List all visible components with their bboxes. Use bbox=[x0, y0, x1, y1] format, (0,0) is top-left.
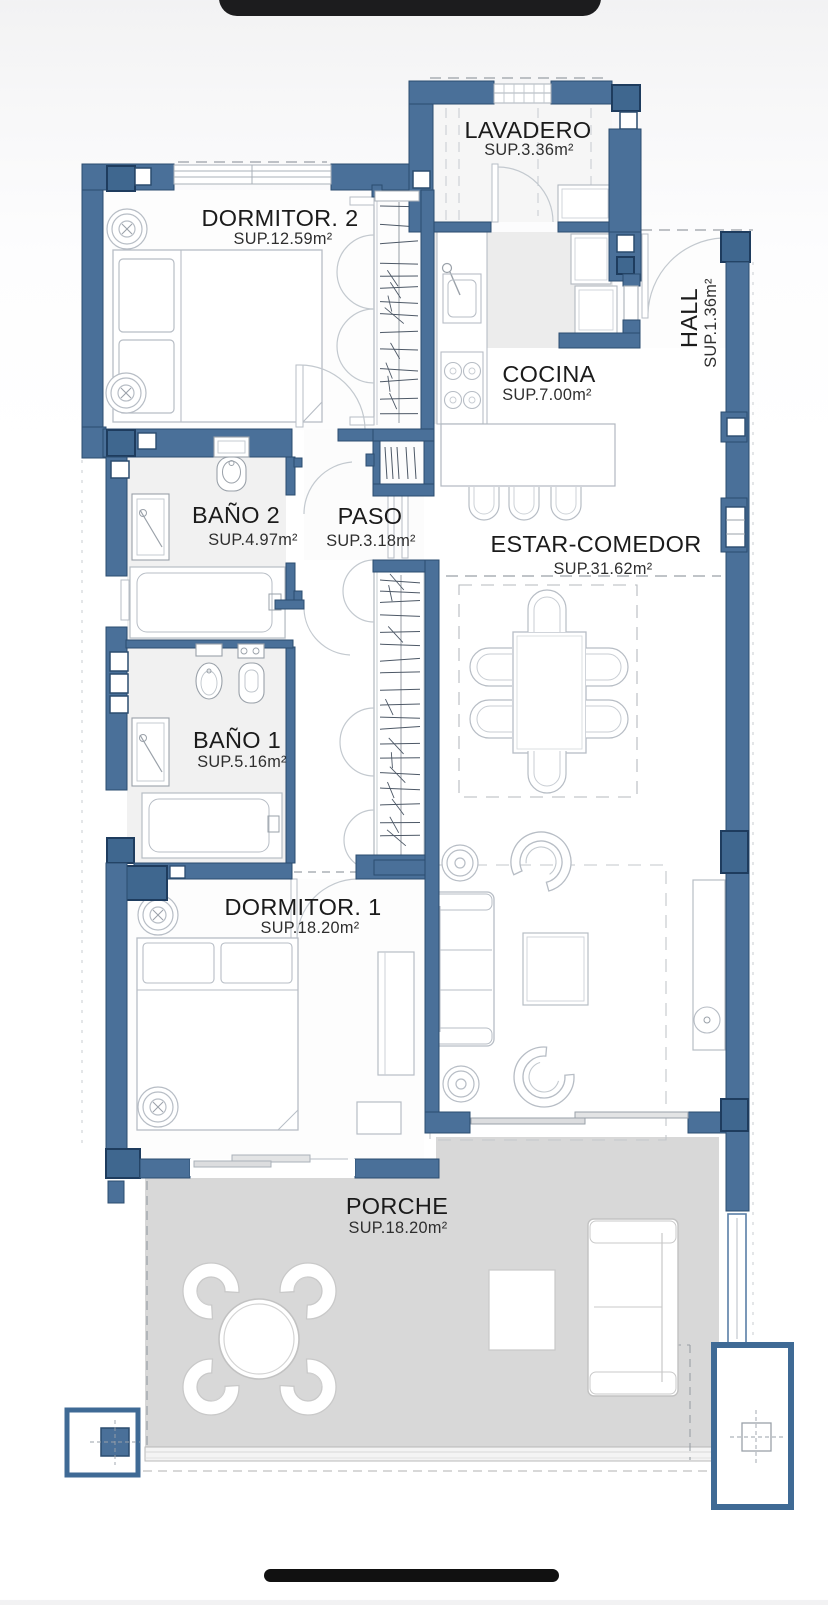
svg-text:DORMITOR. 2: DORMITOR. 2 bbox=[202, 205, 359, 231]
svg-text:SUP.3.36m²: SUP.3.36m² bbox=[484, 141, 574, 159]
svg-text:SUP.1.36m²: SUP.1.36m² bbox=[702, 278, 720, 368]
svg-text:SUP.4.97m²: SUP.4.97m² bbox=[208, 531, 298, 549]
svg-text:SUP.12.59m²: SUP.12.59m² bbox=[234, 230, 333, 248]
svg-text:ESTAR-COMEDOR: ESTAR-COMEDOR bbox=[490, 531, 701, 557]
svg-text:SUP.18.20m²: SUP.18.20m² bbox=[349, 1219, 448, 1237]
svg-text:HALL: HALL bbox=[676, 288, 702, 348]
svg-text:SUP.18.20m²: SUP.18.20m² bbox=[261, 919, 360, 937]
svg-text:SUP.31.62m²: SUP.31.62m² bbox=[554, 560, 653, 578]
svg-text:LAVADERO: LAVADERO bbox=[465, 117, 592, 143]
svg-text:SUP.3.18m²: SUP.3.18m² bbox=[326, 532, 416, 550]
svg-text:COCINA: COCINA bbox=[502, 361, 595, 387]
svg-text:PASO: PASO bbox=[338, 503, 403, 529]
svg-text:DORMITOR. 1: DORMITOR. 1 bbox=[225, 894, 382, 920]
svg-text:SUP.5.16m²: SUP.5.16m² bbox=[197, 753, 287, 771]
svg-text:SUP.7.00m²: SUP.7.00m² bbox=[502, 386, 592, 404]
svg-text:BAÑO 2: BAÑO 2 bbox=[192, 502, 280, 528]
svg-text:PORCHE: PORCHE bbox=[346, 1193, 448, 1219]
svg-text:BAÑO 1: BAÑO 1 bbox=[193, 727, 281, 753]
